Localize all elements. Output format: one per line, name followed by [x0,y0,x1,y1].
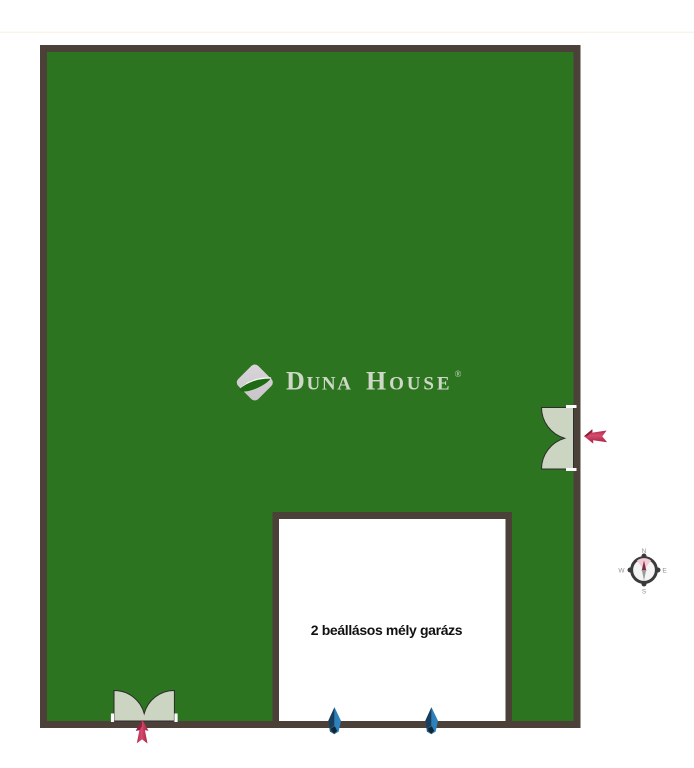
svg-text:2 beállásos mély garázs: 2 beállásos mély garázs [311,622,463,638]
svg-text:W: W [618,568,625,575]
svg-text:N: N [642,548,647,555]
svg-text:E: E [662,568,667,575]
svg-text:S: S [642,589,647,596]
svg-text:®: ® [455,369,462,379]
